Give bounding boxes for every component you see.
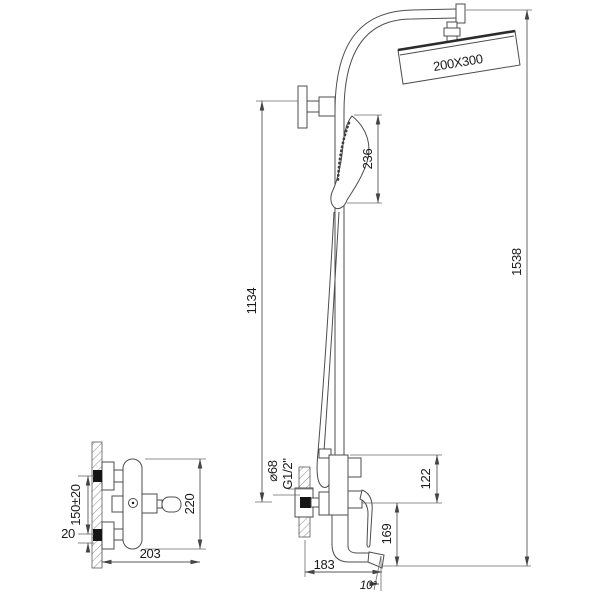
thread-size-text: G1/2" (280, 458, 295, 490)
shower-system-diagram: 200X300 (0, 0, 600, 600)
dim-spout-reach-label: 183 (314, 557, 335, 572)
dim-riser-height-label: 1134 (244, 288, 259, 315)
dim-hand-shower-label: 236 (360, 149, 375, 170)
side-handle (162, 497, 181, 512)
dim-side-body-depth-label: 203 (140, 546, 161, 561)
escutcheon-diameter-text: ⌀68 (265, 460, 280, 481)
dim-122-label: 122 (418, 469, 433, 490)
technical-drawing-canvas: 200X300 (0, 0, 600, 600)
wall-hatch-side-view (92, 442, 102, 568)
wall-bracket (298, 86, 335, 128)
head-ball-joint (444, 22, 460, 42)
dim-total-height: 1538 (382, 10, 532, 566)
tub-spout (332, 515, 384, 568)
dim-connection-spacing-label: 150±20 (68, 484, 83, 526)
dim-total-height-label: 1538 (509, 248, 524, 276)
dim-spout-angle-label: 10° (360, 578, 378, 592)
dim-169-label: 169 (379, 524, 394, 545)
dim-riser-height: 1134 (244, 101, 298, 502)
wall-connection (300, 497, 311, 508)
dim-connection-offset-label: 20 (61, 526, 75, 541)
spout-tip (368, 552, 384, 568)
hand-shower-hose (317, 212, 339, 487)
dim-connection-offset: 20 (61, 526, 94, 551)
mixer-side-view (93, 459, 181, 549)
handle-mount (348, 491, 362, 508)
diverter-knob (348, 458, 361, 477)
arm-end-bracket (456, 4, 465, 23)
dim-side-body-height-label: 220 (182, 494, 197, 515)
mixer-lever (360, 490, 372, 547)
rain-shower-head: 200X300 (398, 31, 520, 84)
